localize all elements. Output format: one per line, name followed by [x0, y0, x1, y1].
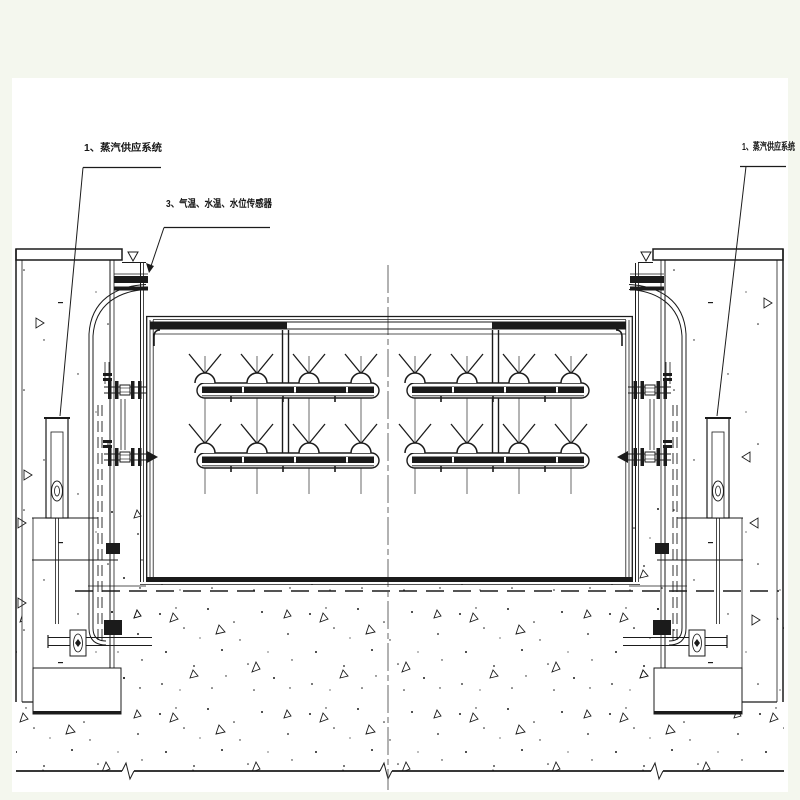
callout-sensors-label: 3、气温、水温、水位传感器 [166, 197, 273, 210]
callout-right-steam-label: 1、蒸汽供应系统 [742, 140, 795, 153]
engineering-drawing: 1、蒸汽供应系统 3、气温、水温、水位传感器 1、蒸汽供应系统 [0, 0, 800, 800]
drawing-canvas: 1、蒸汽供应系统 3、气温、水温、水位传感器 1、蒸汽供应系统 [0, 0, 800, 800]
sensor-mount-band [114, 276, 148, 283]
sensor-mount-band [630, 276, 664, 283]
callout-left-steam-label: 1、蒸汽供应系统 [84, 141, 162, 154]
gate-sill [146, 577, 633, 582]
